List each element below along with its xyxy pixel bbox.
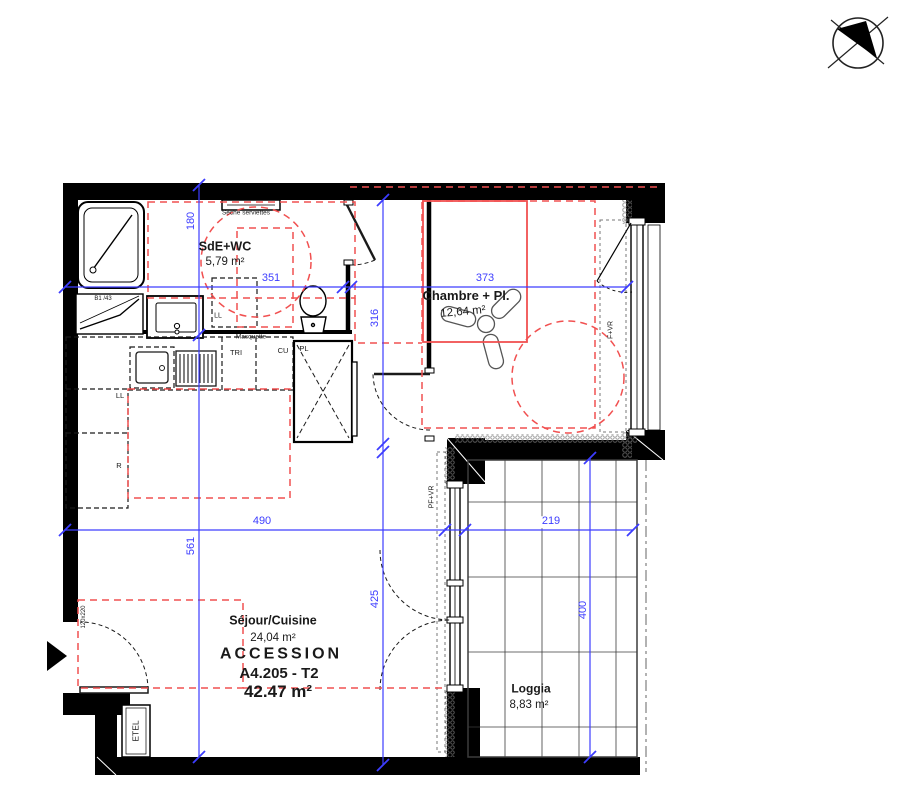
floor-plan-drawing <box>0 0 901 800</box>
washer-label-sde: LL <box>214 312 222 319</box>
fridge-label: R <box>116 462 121 470</box>
dim-left-height: 561 <box>186 536 198 556</box>
unit-reference: A4.205 - T2 <box>239 666 318 682</box>
washbasin <box>147 296 203 338</box>
living-window-label: PF+VR <box>428 486 435 509</box>
dim-loggia-width: 219 <box>541 516 561 528</box>
entry-arrow-icon <box>47 641 67 671</box>
dim-hall-height: 316 <box>370 308 382 328</box>
entry-door-size-label: 120x220 <box>81 605 87 628</box>
room-area-loggia: 8,83 m² <box>510 699 549 711</box>
shower-ref-label: B1 /43 <box>94 296 111 302</box>
room-name-chambre: Chambre + Pl. <box>422 289 509 303</box>
room-name-sejour: Séjour/Cuisine <box>229 614 317 627</box>
floor-plan-canvas: SdE+WC 5,79 m² Chambre + Pl. 12,64 m² Sé… <box>0 0 901 800</box>
dim-sejour-width: 490 <box>252 516 272 528</box>
room-area-sde: 5,79 m² <box>206 256 245 268</box>
kitchen-sink <box>130 347 174 388</box>
bedroom-window-label: F+VR <box>607 321 614 339</box>
toilet <box>300 286 326 333</box>
room-name-sde: SdE+WC <box>199 240 251 253</box>
dim-sejour-height: 425 <box>370 589 382 609</box>
loggia-tile-floor <box>468 460 646 772</box>
unit-program-title: ACCESSION <box>220 647 342 664</box>
closet-pl <box>294 341 357 442</box>
kitchen-hob <box>176 351 216 386</box>
dim-sde-width: 351 <box>261 273 281 285</box>
kitchen-unit-label: CU <box>278 347 289 355</box>
washer-label-kitchen: LL <box>116 392 124 400</box>
dim-chambre-width: 373 <box>475 273 495 285</box>
compass-north-icon <box>828 17 888 68</box>
dim-loggia-height: 400 <box>578 600 590 620</box>
dim-sde-height: 180 <box>186 211 198 231</box>
closet-label: PL <box>299 345 308 353</box>
masque-label: Masquette <box>236 335 266 342</box>
etel-duct-label: ETEL <box>132 720 141 741</box>
exterior-walls <box>63 183 665 775</box>
sorting-bin-label: TRI <box>230 349 242 357</box>
room-area-sejour: 24,04 m² <box>250 632 295 644</box>
shower <box>78 202 144 288</box>
unit-total-area: 42.47 m² <box>244 683 312 701</box>
room-name-loggia: Loggia <box>511 683 550 696</box>
towel-dryer-label: Sèche serviettes <box>222 211 270 218</box>
